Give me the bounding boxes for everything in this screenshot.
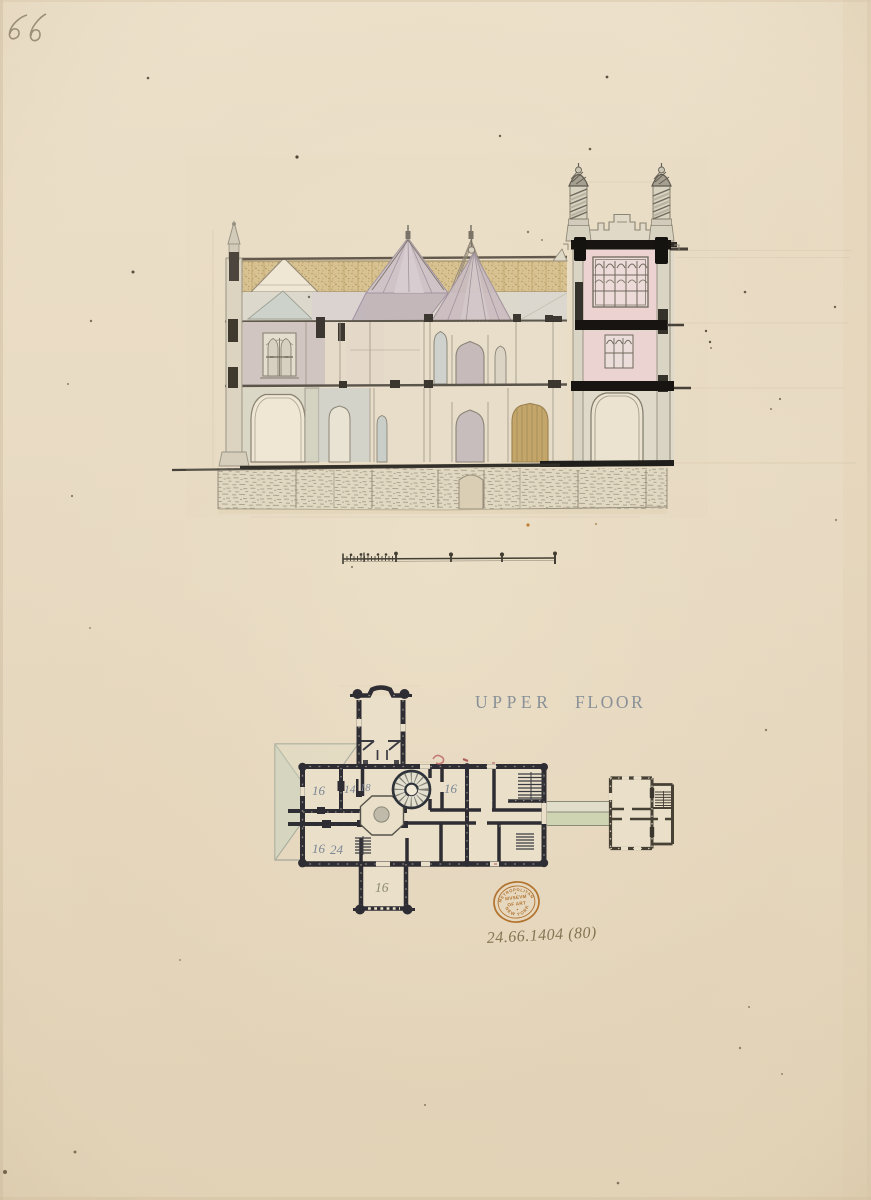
svg-text:16: 16 <box>375 880 389 895</box>
svg-text:18: 18 <box>360 783 371 794</box>
svg-text:16: 16 <box>312 783 326 798</box>
svg-text:FLOOR: FLOOR <box>575 692 645 712</box>
svg-text:16: 16 <box>312 841 326 856</box>
svg-text:16: 16 <box>444 781 458 796</box>
svg-text:14: 14 <box>344 784 356 796</box>
svg-text:UPPER: UPPER <box>475 692 552 712</box>
svg-text:24: 24 <box>330 842 344 857</box>
